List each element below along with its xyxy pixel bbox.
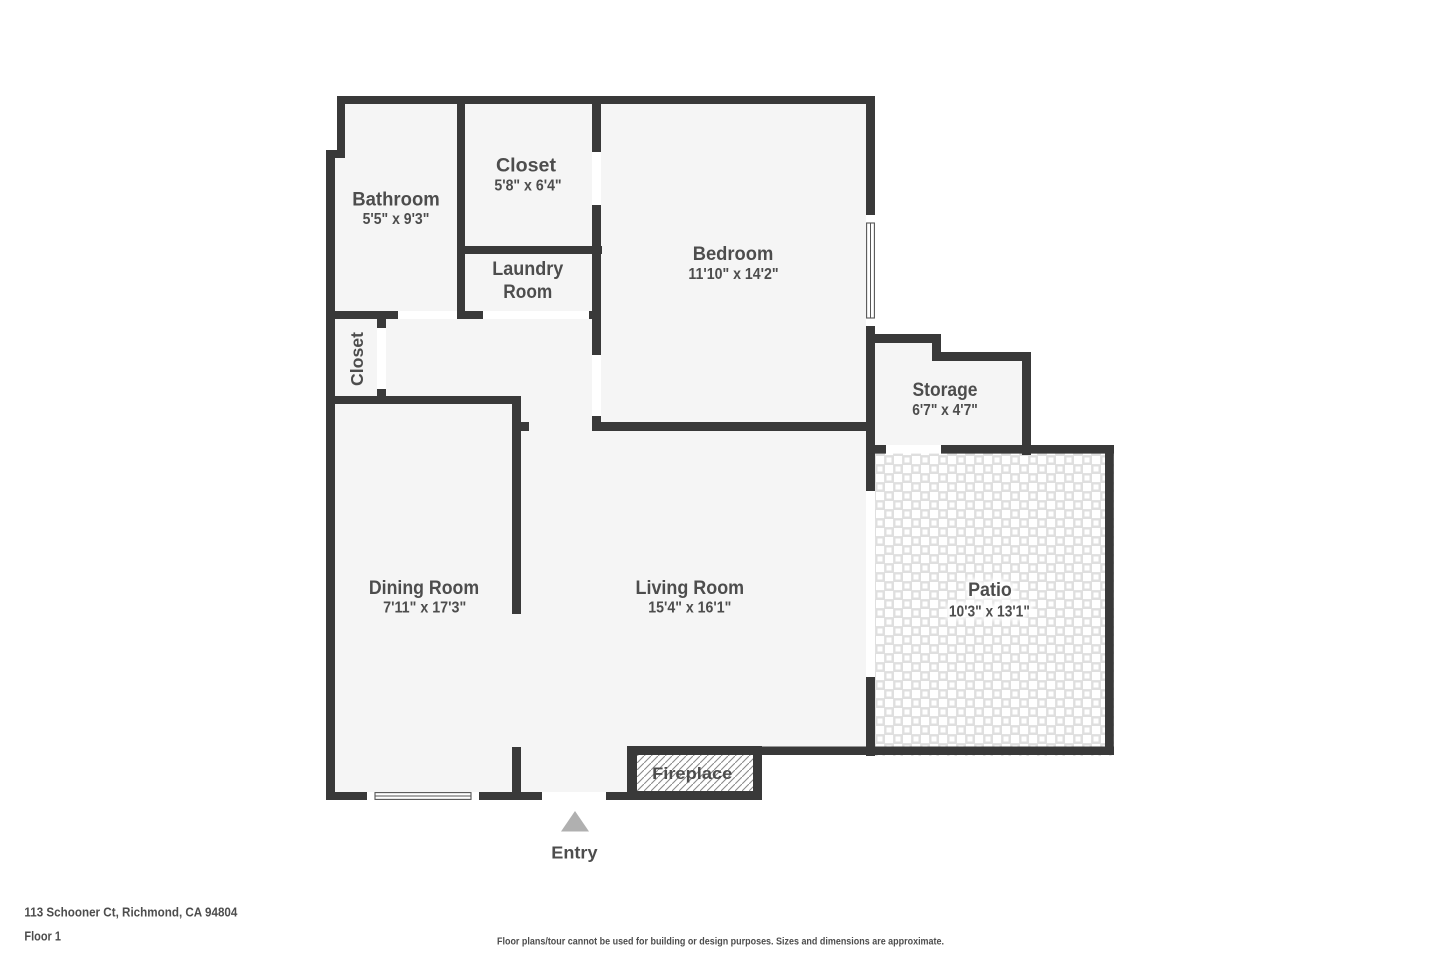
svg-text:Floor 1: Floor 1 [24, 929, 61, 944]
svg-text:Room: Room [503, 281, 552, 303]
svg-text:5'5" x 9'3": 5'5" x 9'3" [363, 211, 430, 228]
svg-text:Patio: Patio [968, 579, 1012, 601]
svg-text:11'10" x 14'2": 11'10" x 14'2" [688, 266, 778, 283]
svg-text:Closet: Closet [496, 155, 556, 177]
svg-text:15'4" x 16'1": 15'4" x 16'1" [648, 599, 731, 616]
svg-text:Fireplace: Fireplace [652, 764, 732, 783]
svg-text:Storage: Storage [913, 379, 978, 401]
svg-text:Closet: Closet [347, 332, 367, 386]
svg-text:Bathroom: Bathroom [352, 189, 440, 211]
svg-text:5'8" x 6'4": 5'8" x 6'4" [494, 178, 561, 195]
svg-text:Living Room: Living Room [636, 577, 745, 599]
svg-text:113 Schooner Ct, Richmond, CA: 113 Schooner Ct, Richmond, CA 94804 [24, 905, 238, 920]
svg-text:Laundry: Laundry [492, 258, 563, 280]
svg-text:Bedroom: Bedroom [693, 243, 774, 265]
svg-text:6'7" x 4'7": 6'7" x 4'7" [912, 402, 978, 419]
svg-text:10'3" x 13'1": 10'3" x 13'1" [949, 604, 1030, 621]
svg-text:Floor plans/tour cannot be use: Floor plans/tour cannot be used for buil… [497, 936, 944, 948]
svg-text:Entry: Entry [551, 843, 597, 863]
svg-text:7'11" x 17'3": 7'11" x 17'3" [383, 599, 466, 616]
svg-text:Dining Room: Dining Room [369, 577, 479, 599]
